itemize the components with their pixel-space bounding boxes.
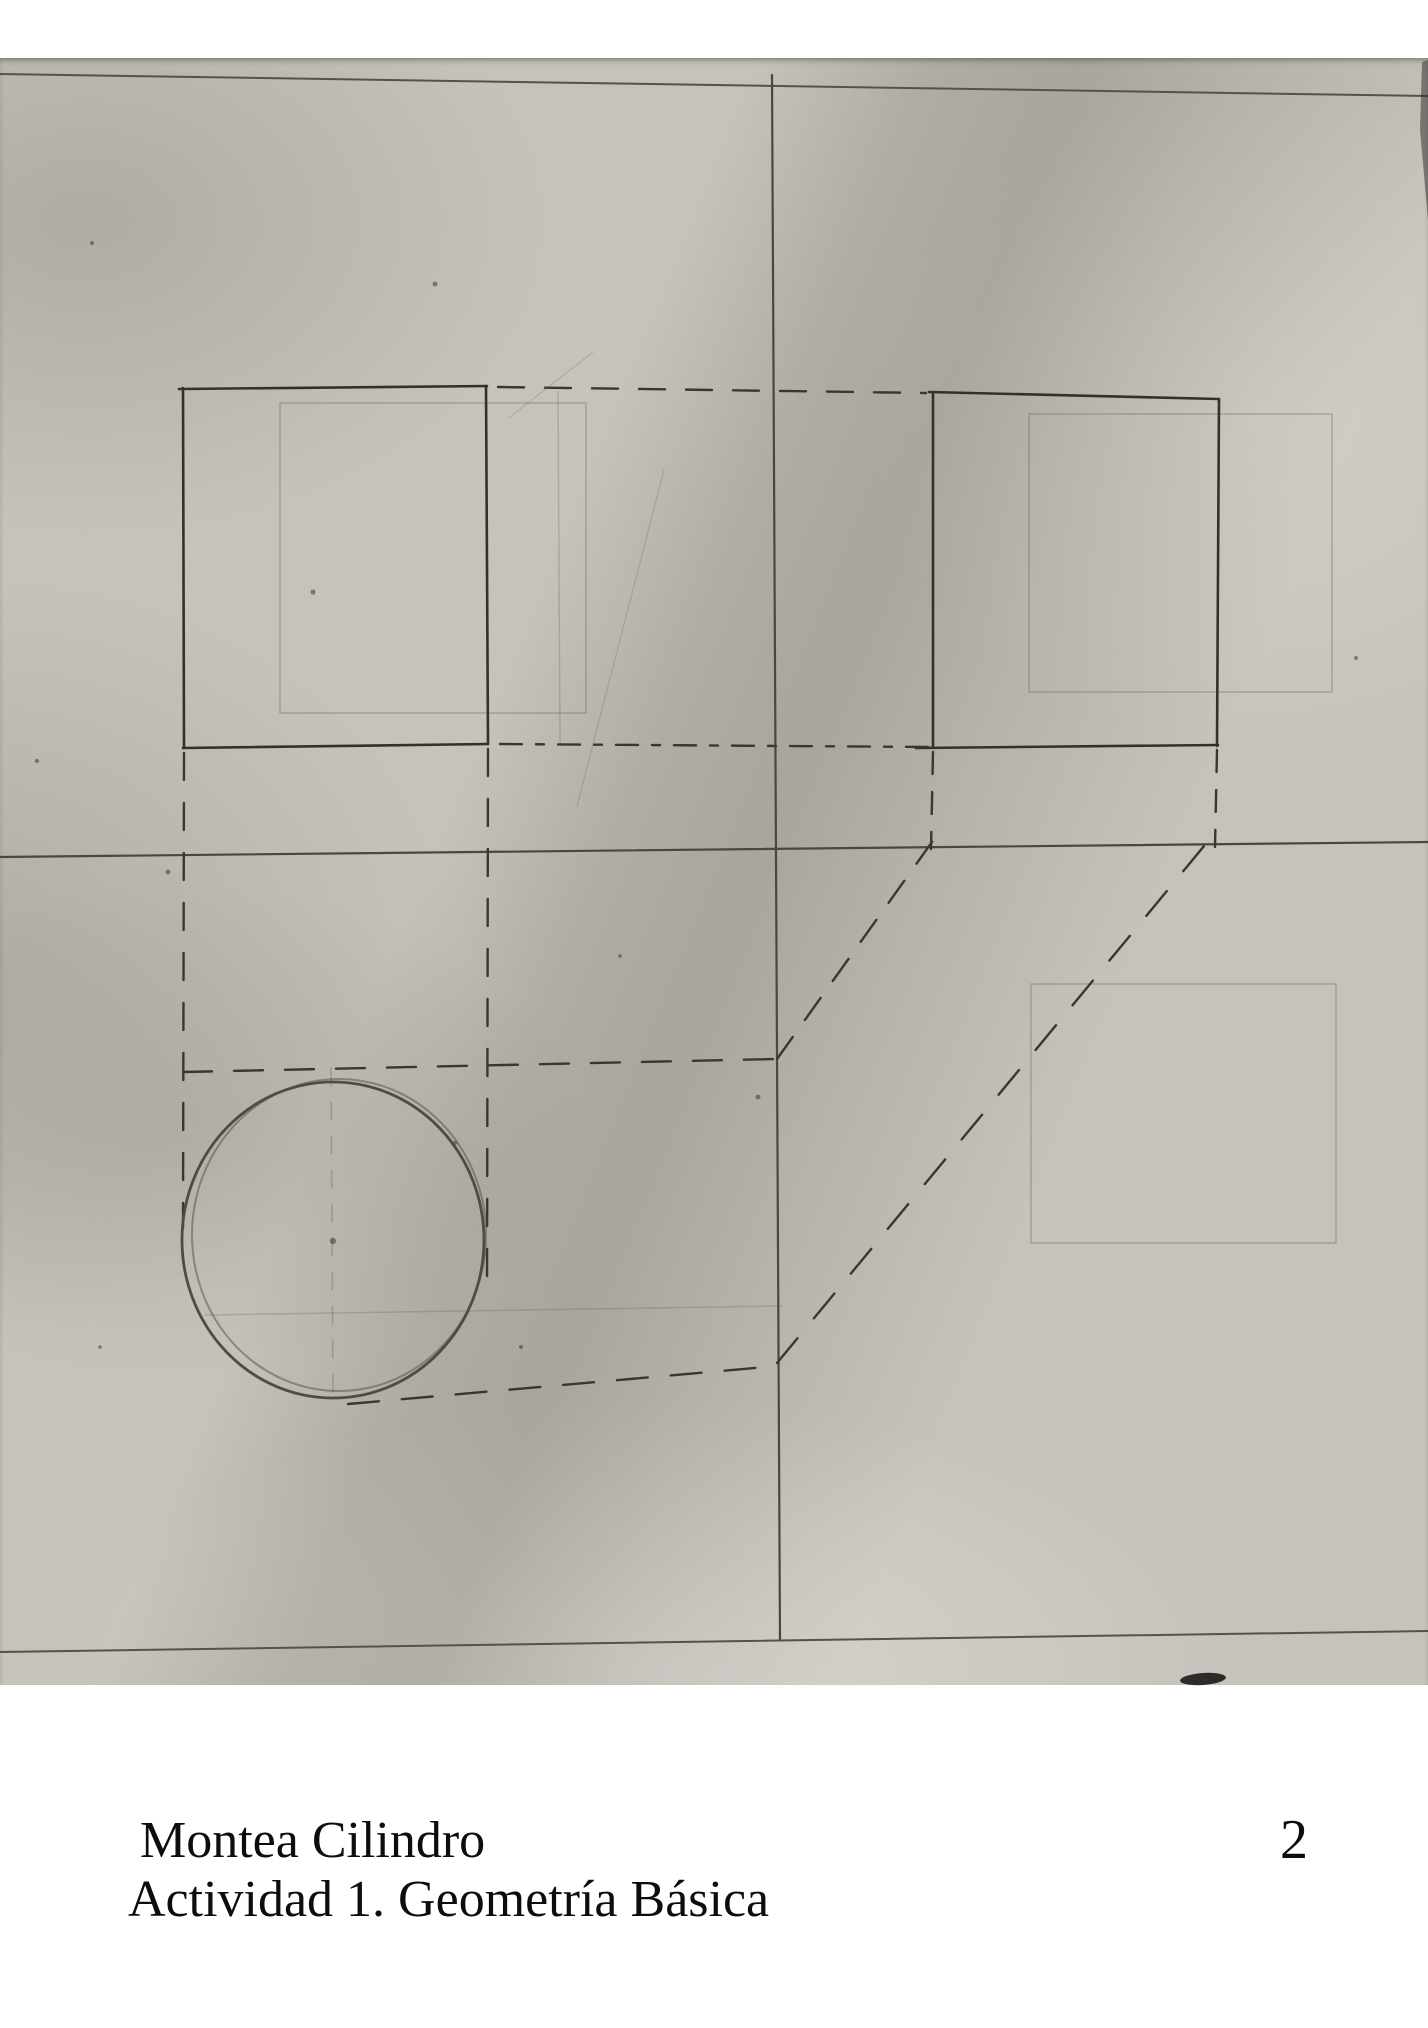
paper-speck <box>756 1095 761 1100</box>
paper-speck <box>1354 656 1358 660</box>
paper-scratch-1 <box>577 470 664 806</box>
paper-speck <box>310 589 315 594</box>
projection-below-front-left <box>183 753 184 1228</box>
paper-speck <box>433 282 438 287</box>
sheet-bottom-border <box>0 1631 1428 1652</box>
photo-edge-shadow <box>1420 60 1428 220</box>
projection-below-front-right <box>487 749 488 1292</box>
technical-drawing <box>0 0 1428 2028</box>
front-view-right-edge <box>486 386 488 744</box>
paper-speck <box>90 241 94 245</box>
transfer-diagonal-long <box>777 840 1209 1363</box>
topview-front-edge <box>183 1059 777 1072</box>
erased-side-construction-square <box>1029 414 1332 692</box>
document-page: { "document": { "caption": { "line1": "M… <box>0 0 1428 2028</box>
paper-speck <box>330 1238 336 1244</box>
side-view-bottom-edge <box>916 745 1218 748</box>
front-view-bottom-edge <box>183 744 488 748</box>
side-view-top-edge <box>929 392 1219 399</box>
page-number: 2 <box>1280 1812 1308 1868</box>
projection-below-side-left <box>931 752 933 849</box>
paper-speck <box>98 1345 102 1349</box>
paper-speck <box>166 870 171 875</box>
topview-back-edge <box>348 1366 777 1404</box>
paper-speck <box>519 1345 523 1349</box>
projection-top-connector <box>498 387 926 393</box>
projection-below-side-right <box>1215 750 1217 847</box>
faint-front-inner-vertical <box>558 392 560 742</box>
front-view-top-edge <box>179 386 487 389</box>
faint-horizontal-construction <box>205 1306 782 1315</box>
projection-bottom-connector <box>500 744 928 747</box>
paper-speck <box>618 954 622 958</box>
caption-subtitle: Actividad 1. Geometría Básica <box>128 1874 769 1926</box>
erased-plan-construction-square <box>1031 984 1336 1243</box>
topview-circle-second-stroke <box>192 1079 486 1391</box>
paper-speck <box>35 759 39 763</box>
paper-scratch-2 <box>510 352 593 417</box>
erased-front-construction-square <box>280 403 586 713</box>
paper-speck <box>453 1141 457 1145</box>
front-view-left-edge <box>183 388 184 748</box>
transfer-diagonal-short <box>777 835 937 1059</box>
photo-bottom-smudge <box>1180 1671 1227 1686</box>
side-view-right-edge <box>1217 399 1219 746</box>
caption-title: Montea Cilindro <box>140 1815 485 1867</box>
horizontal-divider <box>0 842 1428 857</box>
circle-vertical-centerline <box>331 1068 333 1398</box>
vertical-divider <box>772 75 780 1640</box>
sheet-top-border <box>0 74 1428 96</box>
